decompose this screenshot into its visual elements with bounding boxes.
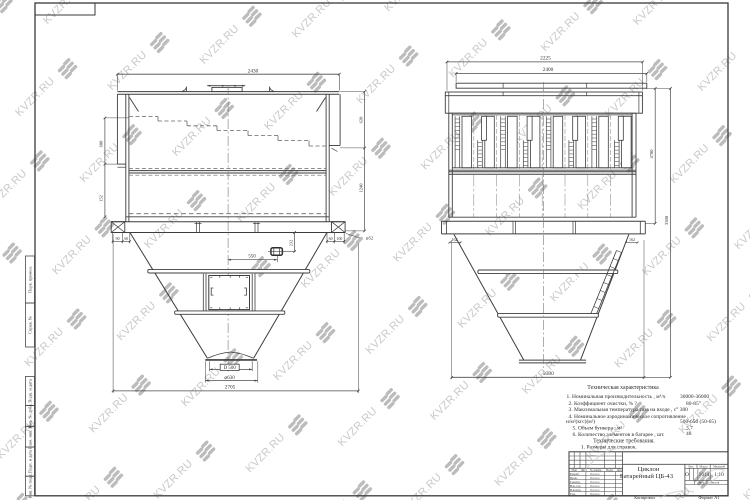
svg-text:D 500: D 500: [224, 366, 237, 371]
svg-text:KVZR.RU: KVZR.RU: [732, 208, 750, 252]
svg-text:Инв. № подл.: Инв. № подл.: [27, 473, 32, 498]
svg-text:KVZR.RU: KVZR.RU: [428, 379, 472, 423]
svg-text:3. Максимальная температура: 3. Максимальная температура газа на вход…: [569, 406, 689, 413]
svg-text:KVZR.RU: KVZR.RU: [0, 260, 2, 304]
svg-text:Технические требования.: Технические требования.: [593, 438, 655, 445]
svg-text:KVZR.RU: KVZR.RU: [115, 299, 159, 343]
svg-text:⌀630: ⌀630: [224, 375, 235, 381]
svg-text:48: 48: [686, 431, 692, 437]
svg-text:Иванов: Иванов: [590, 492, 600, 496]
svg-text:KVZR.RU: KVZR.RU: [612, 327, 656, 371]
svg-text:Подп. и дата: Подп. и дата: [27, 379, 32, 403]
svg-text:KVZR.RU: KVZR.RU: [336, 405, 380, 449]
svg-text:2705: 2705: [225, 385, 236, 391]
svg-text:90: 90: [116, 237, 120, 241]
svg-text:KVZR.RU: KVZR.RU: [493, 445, 537, 489]
svg-text:1. Номинальная производительн: 1. Номинальная производительность , м³/ч: [567, 394, 666, 400]
svg-text:KVZR.RU: KVZR.RU: [78, 141, 122, 185]
svg-text:Иванов: Иванов: [590, 476, 600, 480]
svg-text:KVZR.RU: KVZR.RU: [41, 0, 85, 27]
svg-text:KVZR.RU: KVZR.RU: [741, 459, 750, 500]
svg-text:KVZR.RU: KVZR.RU: [235, 181, 279, 225]
svg-text:600: 600: [99, 140, 104, 148]
svg-text:Утв.: Утв.: [570, 492, 576, 496]
svg-text:KVZR.RU: KVZR.RU: [50, 233, 94, 277]
svg-text:232: 232: [288, 240, 293, 247]
svg-text:3,7: 3,7: [686, 426, 693, 432]
svg-text:KVZR.RU: KVZR.RU: [290, 0, 334, 40]
svg-text:Подп.: Подп.: [606, 468, 614, 472]
svg-text:60: 60: [124, 237, 128, 241]
svg-text:2400: 2400: [543, 67, 554, 73]
svg-text:Иванов: Иванов: [590, 488, 600, 492]
svg-text:KVZR.RU: KVZR.RU: [419, 129, 463, 173]
svg-text:Иванов: Иванов: [590, 484, 600, 488]
svg-text:KVZR.RU: KVZR.RU: [391, 221, 435, 265]
svg-text:Дата: Дата: [617, 468, 624, 472]
svg-text:KVZR.RU: KVZR.RU: [327, 155, 371, 199]
svg-text:KVZR.RU: KVZR.RU: [87, 392, 131, 436]
svg-text:Справ. №: Справ. №: [27, 316, 32, 334]
svg-text:KVZR.RU: KVZR.RU: [59, 484, 103, 500]
svg-text:KVZR.RU: KVZR.RU: [382, 0, 426, 14]
svg-text:KVZR.RU: KVZR.RU: [271, 339, 315, 383]
svg-text:KVZR.RU: KVZR.RU: [668, 142, 712, 186]
svg-text:100: 100: [337, 237, 343, 241]
svg-text:6. Количество элементов в ба: 6. Количество элементов в батарее , шт.: [573, 431, 665, 438]
svg-text:30000-36000: 30000-36000: [680, 394, 709, 400]
svg-text:Масса: Масса: [700, 465, 709, 469]
svg-text:KVZR.RU: KVZR.RU: [0, 167, 29, 211]
svg-text:Формат А1: Формат А1: [698, 495, 719, 500]
svg-text:5. Объем бункера , м³: 5. Объем бункера , м³: [573, 425, 623, 432]
svg-text:Изм: Изм: [572, 468, 577, 472]
svg-text:KVZR.RU: KVZR.RU: [539, 10, 583, 54]
svg-text:2300: 2300: [543, 371, 554, 377]
svg-text:KVZR.RU: KVZR.RU: [576, 168, 620, 212]
svg-text:KVZR.RU: KVZR.RU: [244, 431, 288, 475]
svg-text:KVZR.RU: KVZR.RU: [548, 261, 592, 305]
svg-text:№ докум.: № докум.: [590, 468, 602, 472]
svg-text:KVZR.RU: KVZR.RU: [106, 49, 150, 93]
svg-text:162: 162: [452, 237, 458, 242]
svg-text:Перв. примен.: Перв. примен.: [27, 266, 32, 293]
svg-text:Циклон: Циклон: [638, 466, 660, 473]
svg-text:KVZR.RU: KVZR.RU: [456, 287, 500, 331]
svg-text:620: 620: [358, 116, 363, 124]
svg-text:Иванов: Иванов: [590, 472, 600, 476]
svg-text:KVZR.RU: KVZR.RU: [483, 195, 527, 239]
svg-text:Масштаб: Масштаб: [713, 465, 725, 469]
svg-text:Иванов: Иванов: [590, 480, 600, 484]
svg-text:KVZR.RU: KVZR.RU: [0, 418, 39, 462]
svg-text:1. Размеры для справок.: 1. Размеры для справок.: [581, 445, 637, 451]
svg-text:3380: 3380: [664, 215, 669, 225]
svg-text:Подп. и дата: Подп. и дата: [27, 450, 32, 474]
svg-text:Пров.: Пров.: [570, 476, 578, 480]
svg-text:О: О: [685, 472, 689, 478]
svg-text:Т.контр.: Т.контр.: [570, 480, 581, 484]
svg-text:н/м²(кгс)(м²): н/м²(кгс)(м²): [566, 418, 595, 425]
svg-text:Копировал: Копировал: [634, 495, 656, 500]
svg-text:2. Коэффициент очистки, % ?: 2. Коэффициент очистки, % ?: [569, 400, 638, 407]
svg-text:Лист: Лист: [698, 481, 705, 485]
svg-text:Взам. инв. №: Взам. инв. №: [27, 424, 32, 449]
svg-text:Техническая характеристика: Техническая характеристика: [587, 385, 659, 391]
svg-text:162: 162: [629, 237, 635, 242]
svg-text:KVZR.RU: KVZR.RU: [520, 353, 564, 397]
svg-text:KVZR.RU: KVZR.RU: [364, 313, 408, 357]
svg-text:⌀52: ⌀52: [366, 235, 374, 240]
svg-text:KVZR.RU: KVZR.RU: [640, 234, 684, 278]
svg-text:KVZR.RU: KVZR.RU: [696, 50, 740, 94]
svg-text:KVZR.RU: KVZR.RU: [631, 0, 675, 28]
svg-text:4780: 4780: [649, 149, 654, 159]
svg-text:KVZR.RU: KVZR.RU: [142, 207, 186, 251]
svg-text:KVZR.RU: KVZR.RU: [179, 365, 223, 409]
svg-text:Н.контр.: Н.контр.: [570, 488, 582, 492]
svg-text:500-650 (50-65): 500-650 (50-65): [680, 418, 716, 425]
svg-text:KVZR.RU: KVZR.RU: [170, 115, 214, 159]
svg-text:KVZR.RU: KVZR.RU: [133, 0, 177, 1]
svg-text:152: 152: [99, 194, 104, 202]
svg-text:2225: 2225: [540, 56, 551, 62]
svg-text:1240: 1240: [358, 183, 363, 193]
svg-text:KVZR.RU: KVZR.RU: [198, 23, 242, 67]
svg-text:KVZR.RU: KVZR.RU: [705, 300, 749, 344]
svg-text:KVZR.RU: KVZR.RU: [262, 89, 306, 133]
svg-text:Батарейный ЦБ-43: Батарейный ЦБ-43: [620, 473, 674, 480]
svg-text:80-85°: 80-85°: [686, 400, 701, 407]
svg-text:KVZR.RU: KVZR.RU: [354, 63, 398, 107]
svg-text:Нач.отд.: Нач.отд.: [570, 484, 582, 488]
svg-text:KVZR.RU: KVZR.RU: [151, 458, 195, 500]
svg-text:2430: 2430: [248, 68, 259, 74]
svg-text:Разраб.: Разраб.: [570, 472, 580, 476]
svg-text:Лит.: Лит.: [688, 465, 694, 469]
svg-text:60: 60: [329, 237, 333, 241]
svg-text:550: 550: [248, 255, 256, 260]
